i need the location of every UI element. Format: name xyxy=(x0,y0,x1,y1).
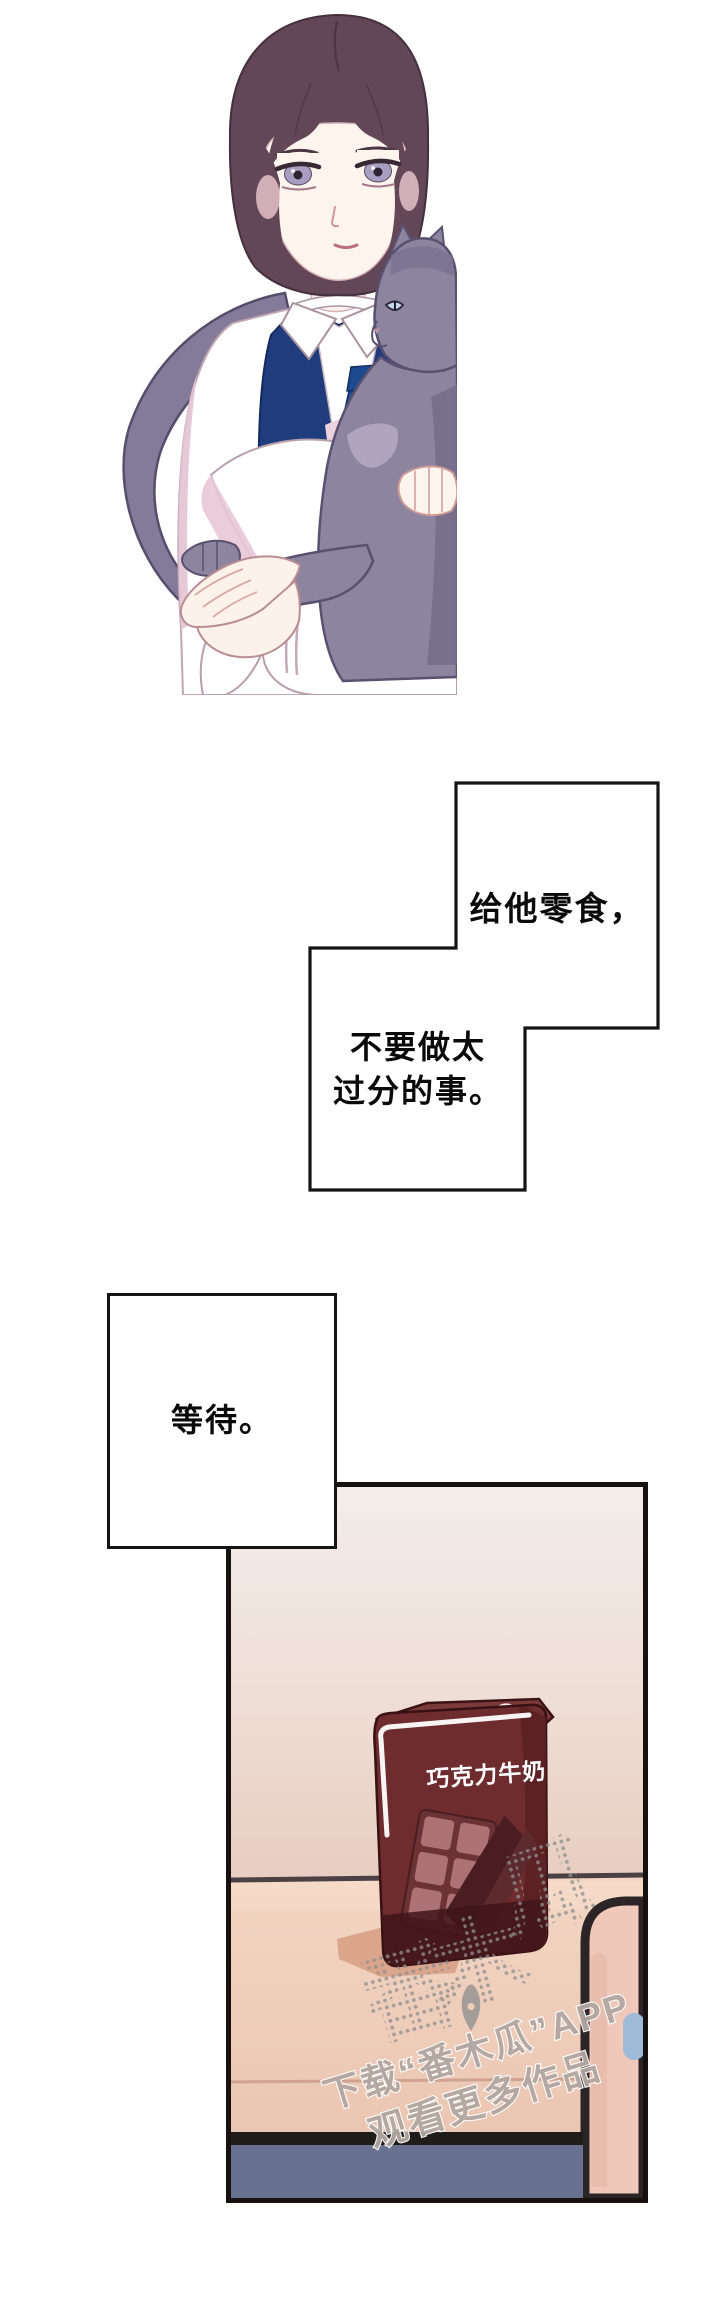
speech-bubble-2-line2: 过分的事。 xyxy=(333,1069,503,1113)
speech-bubble-2-text: 不要做太 过分的事。 xyxy=(312,948,524,1190)
cheek-shade-right xyxy=(399,171,419,211)
table-front xyxy=(231,2145,583,2198)
speech-bubble-2-line1: 不要做太 xyxy=(333,1025,503,1069)
comic-page: 给他零食， 不要做太 过分的事。 xyxy=(0,0,720,2313)
character-illustration xyxy=(85,5,457,695)
cheek-shade-left xyxy=(256,175,280,219)
scene-panel: 巧克力牛奶 瓜 木 番 xyxy=(226,1482,648,2203)
speech-bubble-3-text: 等待。 xyxy=(110,1296,334,1540)
scene-art: 巧克力牛奶 瓜 木 番 xyxy=(231,1487,643,2198)
right-hand xyxy=(399,466,458,515)
